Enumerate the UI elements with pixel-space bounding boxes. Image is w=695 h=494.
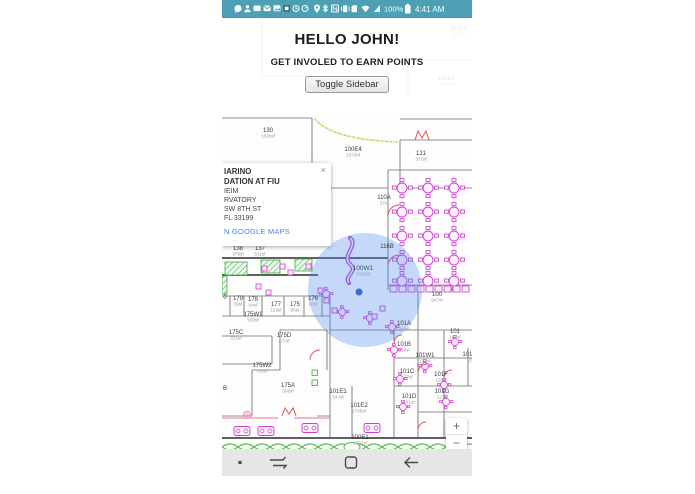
clock-text: 4:41 AM [415,5,445,14]
room-label: 110A37sf [377,195,391,206]
location-dot [356,289,363,296]
popup-detail-line: FL 33199 [224,214,331,223]
phone-screen: 100% 4:41 AM [222,0,472,494]
bench [262,266,267,271]
toggle-sidebar-button[interactable]: Toggle Sidebar [305,76,388,93]
room-label: 17585sf [290,302,301,313]
dumbbell-table [302,424,318,433]
zoom-out-button[interactable]: − [446,434,467,450]
table-with-chairs [393,179,413,198]
close-icon[interactable]: × [321,166,326,175]
room-label: 101B160sf [397,342,411,353]
room-label: 101G112sf [435,389,450,400]
room-label: 175A508sf [281,383,295,394]
bench [266,290,271,295]
room-label: B [223,386,227,392]
dumbbell-table [234,427,250,436]
back-button[interactable] [405,458,418,468]
recents-button[interactable] [270,457,286,469]
bench [280,264,285,269]
wifi-icon [362,6,370,13]
dashed-path [315,119,400,142]
room-label: 100547sf [431,292,443,303]
signal-icon [374,5,380,12]
subtitle-text: GET INVOLED TO EARN POINTS [222,57,472,68]
dumbbell-table [258,427,274,436]
contact-icon [244,5,250,12]
counter-unit [462,286,469,292]
status-bar: 100% 4:41 AM [222,0,472,18]
bench [288,270,293,275]
header-panel: HELLO JOHN! GET INVOLED TO EARN POINTS T… [222,18,472,115]
timer-icon [302,6,308,12]
room-label: 101E22795sf [350,403,368,414]
room-label: 121372sf [415,151,427,162]
hide-navbar-dot[interactable] [238,461,242,465]
room-label: 101F150sf [434,372,448,383]
room-label: 17864sf [248,297,259,308]
alarm-icon [293,6,299,12]
bench [306,264,311,269]
room-label: 137511sf [255,246,267,257]
room-label: 101C177sf [400,369,415,380]
room-label: 100E42373sf [344,147,362,158]
email-icon [264,6,271,12]
room-label: 101D191sf [402,394,417,405]
bluetooth-icon [323,5,328,13]
table-with-chairs [419,251,439,270]
bench [256,284,261,289]
room-label: 100E11702sf [351,435,369,446]
message-icon [254,6,261,12]
room-label: 175D477sf [277,333,292,344]
popup-detail-line: SW 8TH ST [224,205,331,214]
room-label: 17939sf [233,296,244,307]
zoom-in-button[interactable]: + [446,418,467,434]
pink-corridor [222,412,330,419]
dumbbell-table [364,424,380,433]
room-label: 101E322 [462,352,472,363]
nfc-icon [332,5,339,12]
room-label: 175W2700sf [252,363,272,374]
popup-detail-line: IEIM [224,187,331,196]
gallery-icon [274,5,281,11]
room-label: 101A343sf [397,321,411,332]
screenshot-icon [284,5,290,11]
battery-icon [405,4,411,14]
chat-icon [234,5,241,13]
counter-unit [453,286,460,292]
popup-title-line: IARINO [224,167,331,177]
room-label: 17660sf [308,296,319,307]
battery-percent-text: 100% [384,5,404,14]
sd-card-icon [352,5,358,12]
room-label: 116B [380,244,394,250]
room-label: 175C221sf [229,330,244,341]
room-label: 101E1547sf [329,389,347,400]
map-zoom-control: + − [446,418,467,450]
room-label: 101W1194sf [415,353,435,364]
content-area: 100E31900sf100E51175sf1301628sf100E42373… [222,18,472,494]
table-with-chairs [419,179,439,198]
location-icon [314,5,320,14]
table-with-chairs [445,179,465,198]
room-label: 175W1500sf [243,312,263,323]
home-button[interactable] [346,457,357,468]
room-label: 138379sf [232,246,244,257]
android-nav-bar [222,449,472,476]
table-with-chairs [445,251,465,270]
table-with-chairs [419,227,439,246]
popup-detail-line: RVATORY [224,196,331,205]
google-maps-link[interactable]: N GOOGLE MAPS [224,227,331,236]
room-label: 1301628sf [261,128,276,139]
room-label: 177119sf [271,302,283,313]
greeting-title: HELLO JOHN! [222,18,472,48]
vibrate-icon [342,5,350,12]
room-label: 101107sf [449,329,461,340]
popup-title-line: DATION AT FIU [224,177,331,187]
table-with-chairs [419,203,439,222]
table-with-chairs [445,227,465,246]
counter-unit [444,286,451,292]
table-with-chairs [445,203,465,222]
location-info-popup: × IARINODATION AT FIUIEIMRVATORYSW 8TH S… [222,163,331,246]
